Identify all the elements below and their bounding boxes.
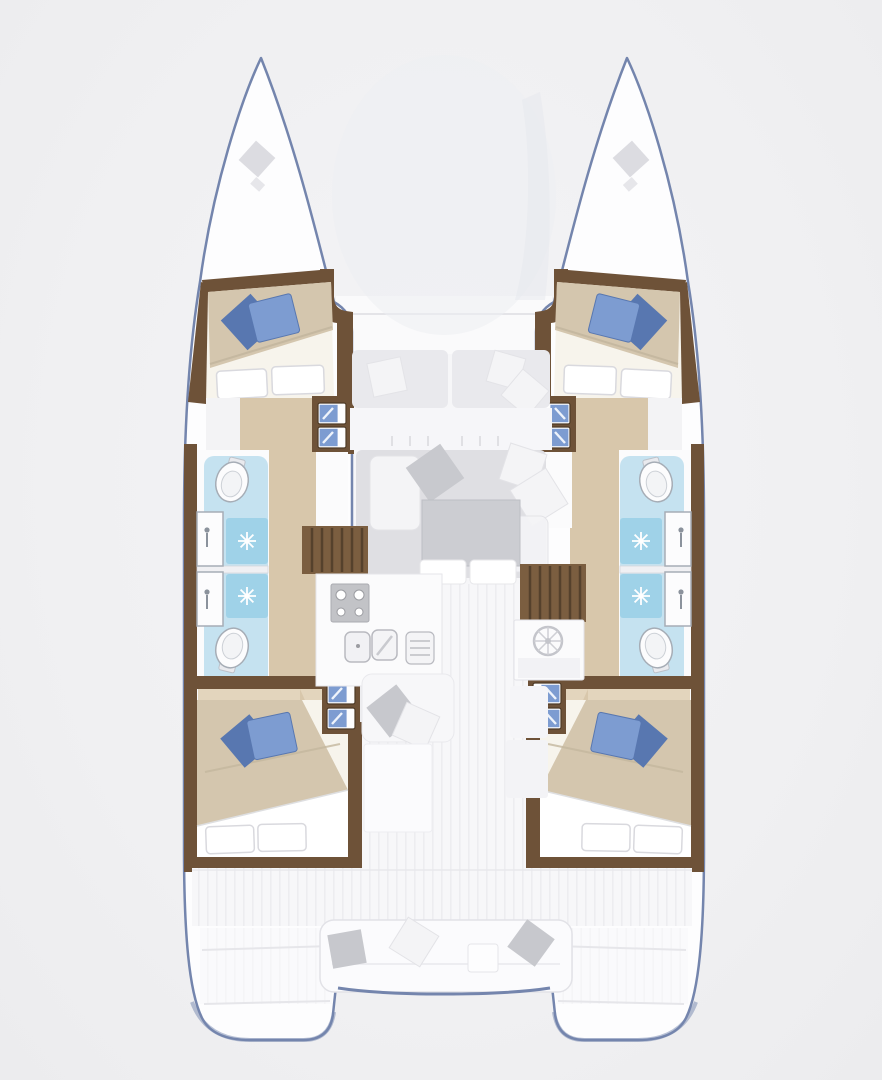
catamaran-floor-plan <box>0 0 882 1080</box>
aft-cabin-wall-top <box>186 676 326 689</box>
stove-burner <box>337 608 345 616</box>
helm-wheel-hub <box>545 638 551 644</box>
nav-helm-station <box>514 620 584 680</box>
starboard-companionway-stairs <box>520 564 586 622</box>
bathroom-outer-wall <box>184 444 197 704</box>
fore-cabin-floor <box>240 398 314 456</box>
aft-cabin-wall-outer <box>184 676 197 872</box>
fore-cabin-cabinet <box>312 396 354 454</box>
seat-pillow-gray <box>327 929 366 968</box>
bench-table <box>468 944 498 972</box>
faucet-icon <box>204 527 209 532</box>
aft-cabin-wall-inner <box>348 722 362 871</box>
salon-table <box>422 500 520 566</box>
washbasin-counter <box>197 572 223 626</box>
port-companionway-stairs <box>302 526 368 574</box>
sink-drain <box>356 644 360 648</box>
washbasin-counter <box>197 512 223 566</box>
aft-cabin <box>184 676 362 872</box>
galley <box>316 574 442 686</box>
aft-bed-foot-cushion <box>258 824 306 852</box>
stern-deck-stripes <box>200 928 332 1004</box>
aft-bed-foot-cushion <box>206 825 255 854</box>
fore-bed-foot-cushion <box>272 365 325 395</box>
bench-front-deck <box>350 408 552 450</box>
stove <box>331 584 369 622</box>
cockpit-locker <box>510 686 548 738</box>
bathrooms <box>184 444 269 704</box>
stove-burner <box>354 590 364 600</box>
stove-burner <box>336 590 346 600</box>
cockpit-locker <box>506 740 548 798</box>
aft-cockpit-bench <box>320 917 572 992</box>
floor-plan-canvas <box>0 0 882 1080</box>
hull-corridor-floor <box>268 452 318 704</box>
bed-pillow-blue <box>246 712 297 760</box>
cockpit-sunpad <box>364 744 432 832</box>
cabinet-drawer <box>318 427 346 448</box>
cabinet-drawer <box>318 403 346 424</box>
aft-deck-band <box>192 868 692 926</box>
fore-bed-foot-cushion <box>216 369 267 400</box>
nav-shelf <box>518 658 580 678</box>
fore-cabin <box>188 269 354 456</box>
sofa-seat-cushion <box>470 560 516 584</box>
seat-pillow-white <box>367 357 407 397</box>
shower-drain-icon <box>238 532 256 550</box>
faucet-icon <box>204 589 209 594</box>
cabinet-drawer <box>327 708 355 729</box>
inboard-counter <box>316 452 348 528</box>
fore-cabin-seat <box>206 398 240 456</box>
stove-burner <box>355 608 363 616</box>
salon-lounge <box>356 443 568 584</box>
shower-drain-icon <box>238 587 256 605</box>
